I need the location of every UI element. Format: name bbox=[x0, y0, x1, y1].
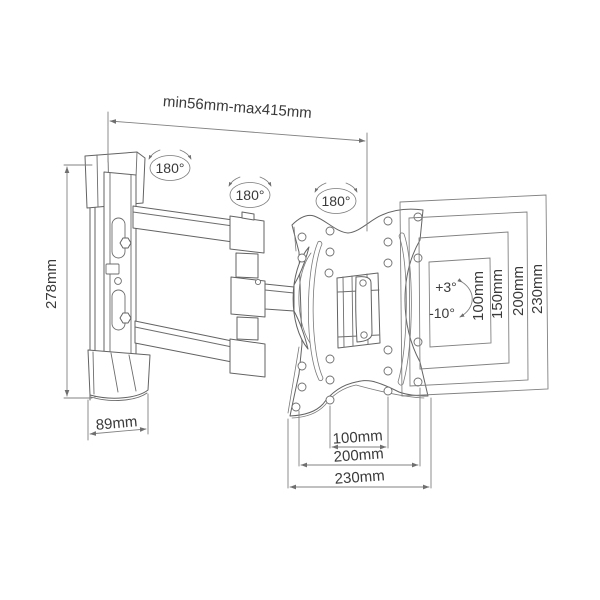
label-swivel-elbow: 180° bbox=[236, 187, 265, 203]
bracket-screw-bottom bbox=[361, 332, 367, 338]
label-bottom-100: 100mm bbox=[332, 427, 383, 447]
rail-keyhole-slot-lower bbox=[112, 290, 125, 330]
label-swivel-wall: 180° bbox=[156, 160, 185, 176]
label-tilt-up: +3° bbox=[435, 279, 457, 295]
label-wall-plate-width: 89mm bbox=[95, 413, 138, 434]
elbow-middle-bolt bbox=[255, 279, 260, 284]
label-bottom-200: 200mm bbox=[333, 445, 384, 465]
label-side-200: 200mm bbox=[510, 266, 527, 316]
label-swivel-plate: 180° bbox=[322, 193, 351, 209]
articulating-arms bbox=[133, 206, 294, 377]
lower-pivot-bolt bbox=[120, 313, 131, 323]
elbow-lower-column bbox=[237, 317, 258, 340]
tilt-hinge-bracket bbox=[337, 273, 380, 348]
elbow-top-block bbox=[230, 216, 264, 253]
tilt-annotation: +3° -10° bbox=[429, 279, 472, 321]
bracket-screw-top bbox=[360, 280, 366, 286]
elbow-top-bolt bbox=[242, 212, 254, 220]
label-wall-plate-height: 278mm bbox=[43, 259, 60, 309]
middle-arm bbox=[265, 284, 294, 311]
upper-pivot-bolt bbox=[120, 238, 131, 248]
wall-bracket-foot bbox=[88, 350, 150, 398]
label-bottom-230: 230mm bbox=[334, 467, 385, 487]
label-tilt-down: -10° bbox=[429, 305, 455, 321]
product-technical-drawing: min56mm-max415mm 278mm 89mm 100mm 200mm … bbox=[0, 0, 600, 600]
dimensions-side: 100mm 150mm 200mm 230mm bbox=[400, 195, 548, 396]
dimension-wall-plate-height: 278mm bbox=[43, 165, 92, 398]
label-extension-range: min56mm-max415mm bbox=[162, 93, 312, 122]
rail-square-hole bbox=[106, 264, 119, 274]
label-side-100: 100mm bbox=[470, 271, 487, 321]
rail-small-hole bbox=[115, 278, 122, 285]
label-side-150: 150mm bbox=[489, 269, 506, 319]
vesa-plate bbox=[288, 209, 428, 418]
swivel-annotations: 180° 180° 180° bbox=[149, 150, 357, 214]
swivel-elbow: 180° bbox=[229, 177, 271, 208]
label-side-230: 230mm bbox=[529, 264, 546, 314]
wall-mount-diagram: min56mm-max415mm 278mm 89mm 100mm 200mm … bbox=[0, 0, 600, 600]
elbow-bottom-block bbox=[230, 339, 265, 377]
dimension-line bbox=[110, 121, 365, 141]
wall-bracket bbox=[85, 152, 150, 400]
swivel-wall: 180° bbox=[149, 150, 191, 181]
swivel-plate: 180° bbox=[315, 183, 357, 214]
elbow-upper-column bbox=[236, 253, 258, 278]
